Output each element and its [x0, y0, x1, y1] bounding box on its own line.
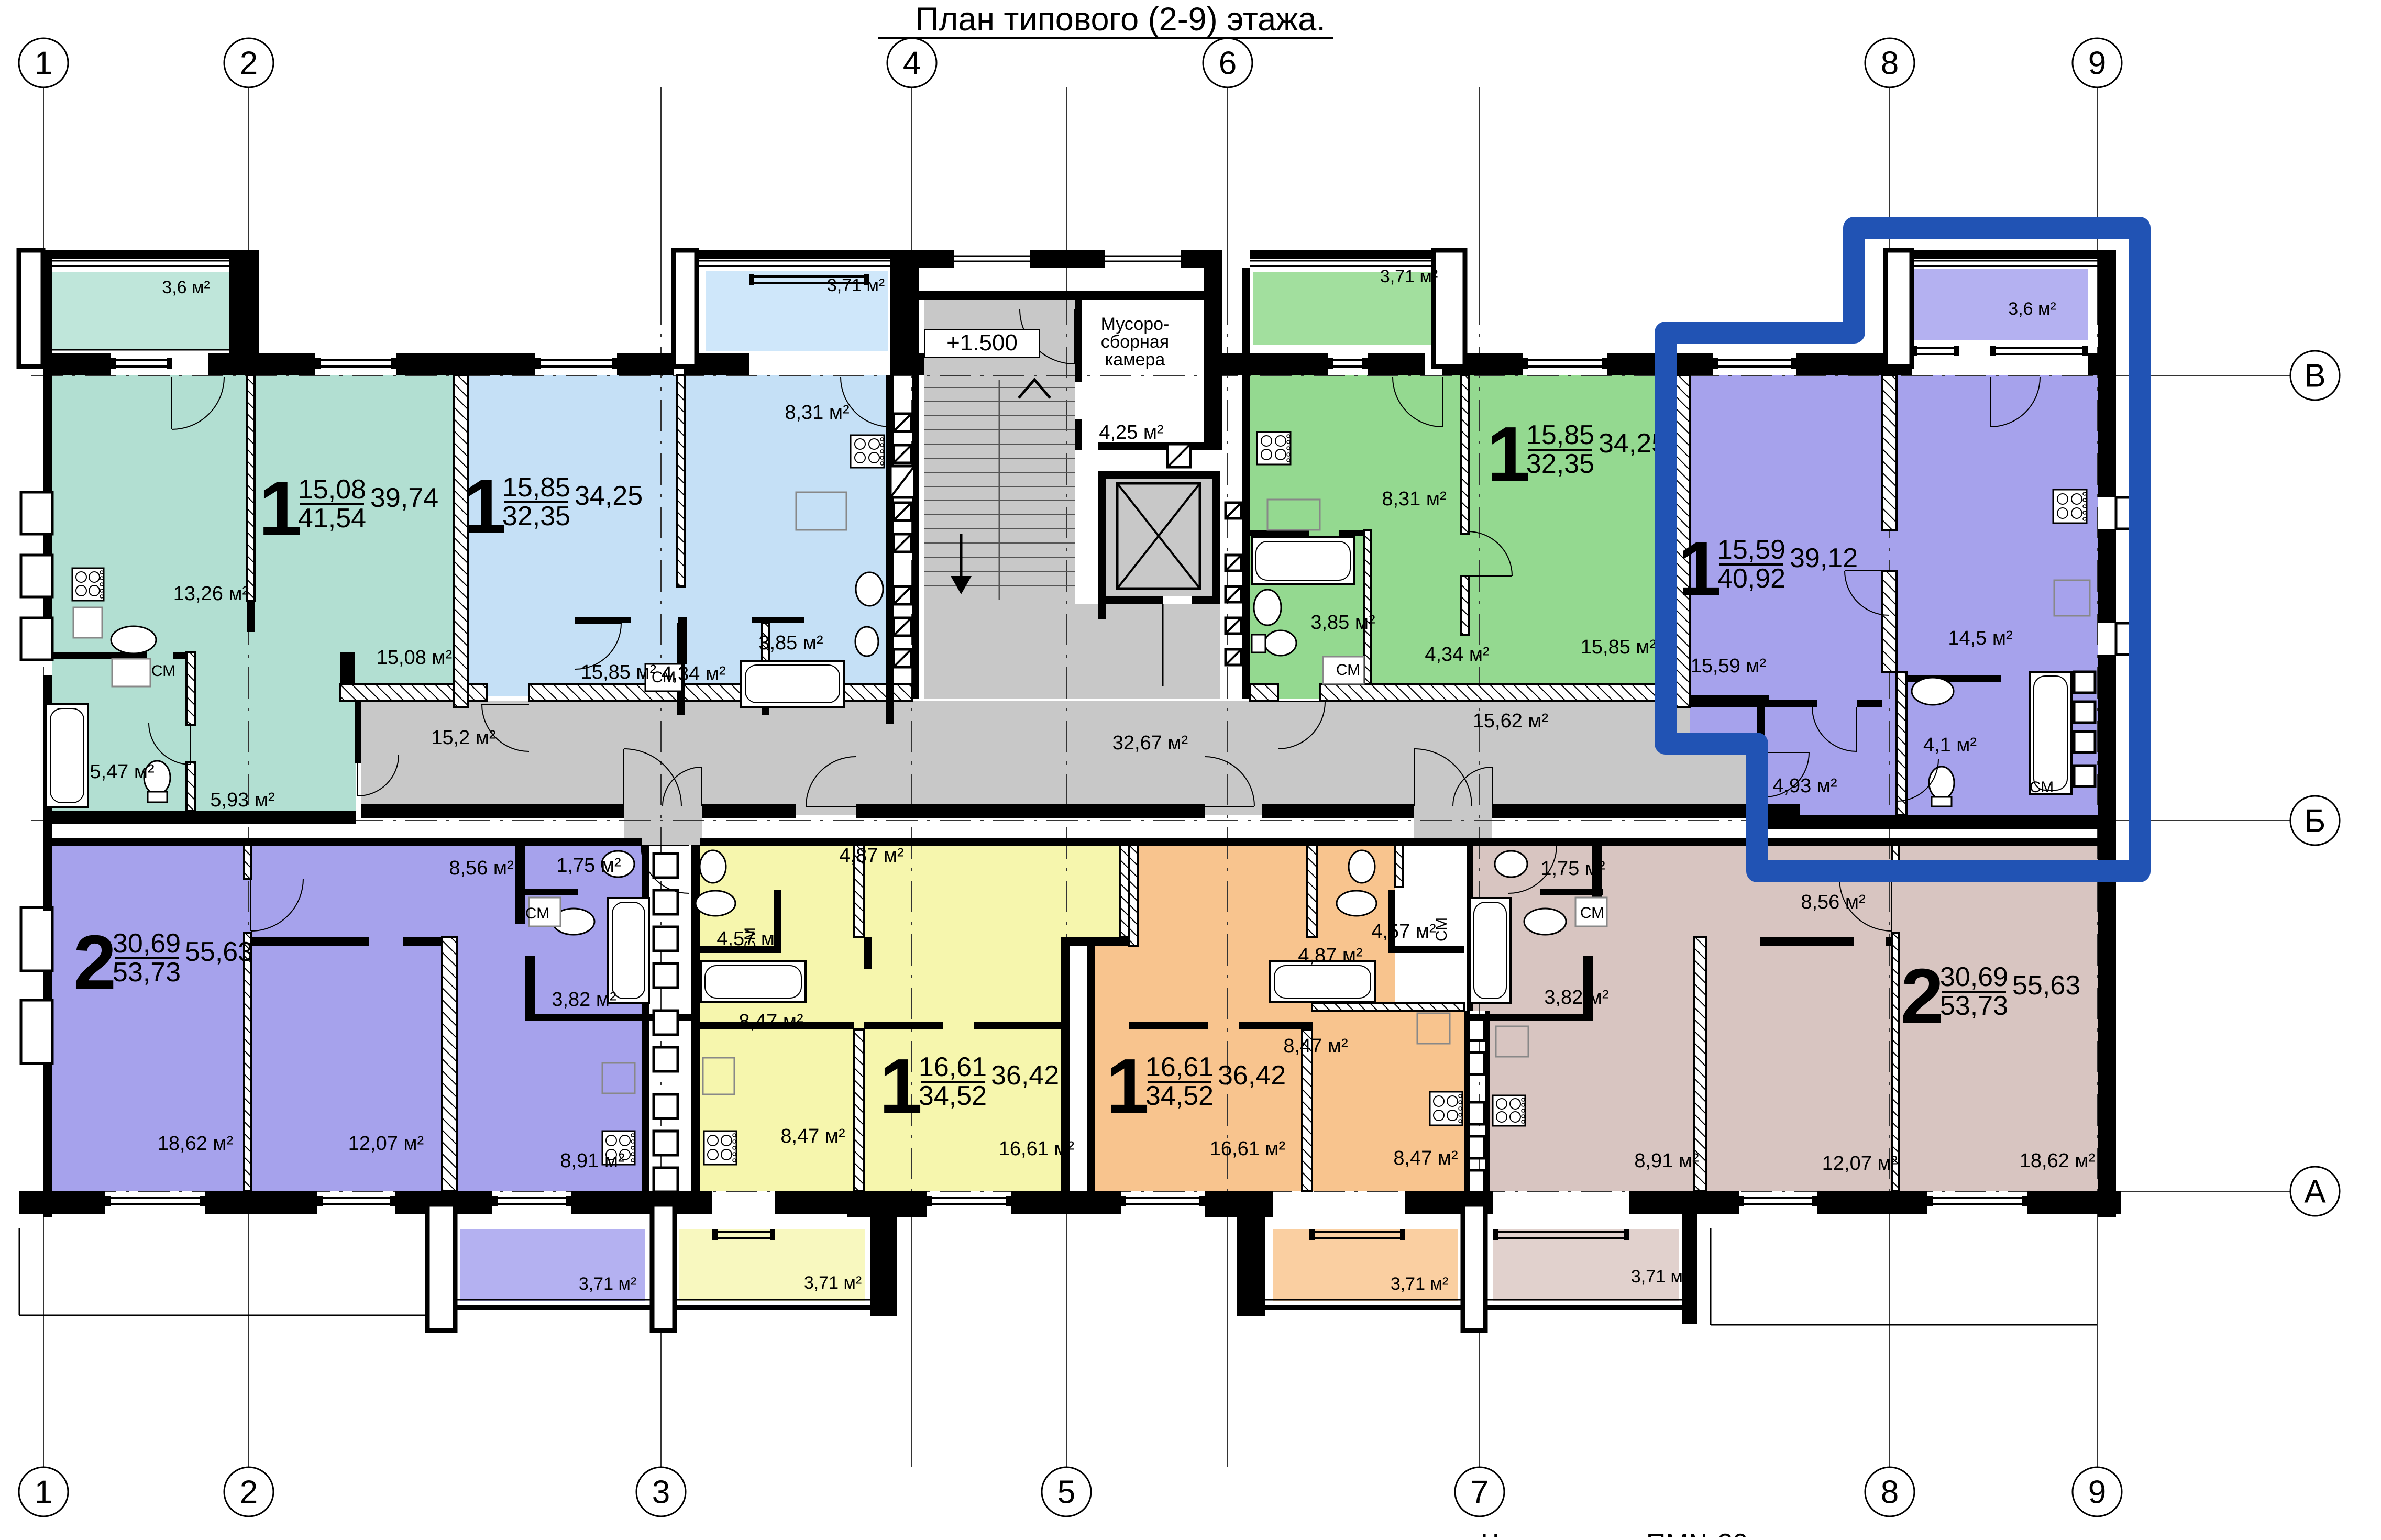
svg-text:15,62 м²: 15,62 м²: [1473, 710, 1548, 732]
svg-text:1: 1: [463, 463, 506, 550]
svg-text:1: 1: [1487, 411, 1530, 497]
svg-text:15,08: 15,08: [298, 474, 366, 505]
svg-text:1: 1: [1106, 1043, 1149, 1129]
svg-text:6: 6: [1219, 46, 1237, 82]
svg-text:18,62 м²: 18,62 м²: [158, 1133, 233, 1155]
svg-text:36,42: 36,42: [1218, 1060, 1286, 1091]
svg-text:16,61 м²: 16,61 м²: [1210, 1138, 1285, 1160]
svg-text:16,61 м²: 16,61 м²: [999, 1138, 1074, 1160]
svg-text:7: 7: [1471, 1475, 1489, 1511]
svg-text:15,85 м²: 15,85 м²: [581, 661, 656, 683]
svg-text:1: 1: [35, 1475, 52, 1511]
svg-text:+1.500: +1.500: [946, 330, 1018, 356]
svg-text:15,85: 15,85: [1526, 420, 1594, 450]
svg-text:4,93 м²: 4,93 м²: [1772, 775, 1837, 797]
svg-text:32,35: 32,35: [1526, 449, 1594, 479]
svg-text:5,93 м²: 5,93 м²: [210, 789, 274, 811]
svg-text:СМ: СМ: [525, 905, 549, 922]
svg-text:4,25 м²: 4,25 м²: [1099, 422, 1163, 444]
svg-text:9: 9: [2088, 1475, 2106, 1511]
svg-text:39,12: 39,12: [1790, 543, 1858, 573]
svg-text:34,25: 34,25: [575, 481, 643, 511]
svg-text:3,82 м²: 3,82 м²: [1544, 987, 1608, 1009]
svg-text:1: 1: [1678, 526, 1721, 612]
svg-text:3,6 м²: 3,6 м²: [162, 278, 210, 297]
svg-text:3,71 м²: 3,71 м²: [804, 1273, 862, 1293]
svg-text:СМ: СМ: [652, 669, 676, 686]
svg-text:2: 2: [240, 1475, 258, 1511]
svg-text:СМ: СМ: [1433, 917, 1450, 941]
svg-text:18,62 м²: 18,62 м²: [2020, 1150, 2095, 1172]
svg-text:ПМ№20: ПМ№20: [1646, 1528, 1748, 1537]
svg-text:камера: камера: [1105, 350, 1165, 370]
svg-text:8,56 м²: 8,56 м²: [449, 857, 513, 879]
svg-text:8,47 м²: 8,47 м²: [780, 1125, 845, 1147]
svg-text:15,2 м²: 15,2 м²: [431, 727, 495, 749]
svg-text:8,31 м²: 8,31 м²: [1382, 488, 1446, 510]
svg-text:8: 8: [1881, 1475, 1899, 1511]
svg-text:3,71 м²: 3,71 м²: [827, 275, 885, 295]
svg-text:34,52: 34,52: [1145, 1081, 1214, 1111]
svg-text:39,74: 39,74: [370, 483, 438, 513]
svg-text:Ч: Ч: [1481, 1528, 1500, 1537]
svg-text:3,85 м²: 3,85 м²: [758, 632, 823, 654]
svg-text:53,73: 53,73: [113, 957, 181, 988]
svg-text:2: 2: [240, 46, 258, 82]
svg-text:8,47 м²: 8,47 м²: [1283, 1035, 1348, 1057]
svg-text:1: 1: [35, 46, 52, 82]
svg-text:40,92: 40,92: [1717, 563, 1785, 594]
svg-text:8,91 м²: 8,91 м²: [560, 1150, 624, 1172]
svg-text:сборная: сборная: [1101, 332, 1169, 352]
svg-text:1,75 м²: 1,75 м²: [556, 855, 621, 877]
svg-text:32,67 м²: 32,67 м²: [1112, 732, 1188, 754]
svg-text:55,63: 55,63: [185, 937, 253, 967]
svg-text:4,87 м²: 4,87 м²: [839, 845, 903, 867]
svg-text:8,91 м²: 8,91 м²: [1634, 1150, 1699, 1172]
svg-text:СМ: СМ: [151, 662, 175, 680]
svg-text:1: 1: [879, 1043, 922, 1129]
svg-text:14,5 м²: 14,5 м²: [1948, 627, 2012, 649]
svg-text:4,34 м²: 4,34 м²: [1425, 644, 1489, 666]
svg-text:3,6 м²: 3,6 м²: [2008, 299, 2056, 319]
svg-text:12,07 м²: 12,07 м²: [1822, 1153, 1898, 1175]
svg-text:8,47 м²: 8,47 м²: [1393, 1147, 1458, 1169]
svg-text:3,82 м²: 3,82 м²: [552, 989, 616, 1011]
svg-text:4,1 м²: 4,1 м²: [1923, 734, 1977, 756]
svg-text:55,63: 55,63: [2012, 970, 2080, 1001]
svg-text:А: А: [2304, 1174, 2326, 1210]
svg-text:32,35: 32,35: [502, 501, 570, 531]
svg-text:1,75 м²: 1,75 м²: [1540, 858, 1605, 880]
svg-text:3,71 м²: 3,71 м²: [1380, 267, 1438, 286]
svg-text:36,42: 36,42: [991, 1060, 1059, 1091]
svg-text:2: 2: [73, 919, 116, 1006]
svg-text:СМ: СМ: [742, 927, 759, 951]
svg-text:53,73: 53,73: [1940, 991, 2008, 1021]
svg-text:8: 8: [1881, 46, 1899, 82]
svg-text:9: 9: [2088, 46, 2106, 82]
svg-text:34,52: 34,52: [919, 1081, 987, 1111]
svg-text:8,47 м²: 8,47 м²: [738, 1011, 803, 1033]
svg-text:16,61: 16,61: [1145, 1052, 1214, 1082]
svg-text:3,71 м²: 3,71 м²: [579, 1274, 636, 1294]
svg-text:41,54: 41,54: [298, 503, 366, 534]
svg-text:15,59: 15,59: [1717, 535, 1785, 565]
svg-text:4,87 м²: 4,87 м²: [1298, 945, 1362, 967]
svg-text:15,59 м²: 15,59 м²: [1691, 655, 1766, 677]
svg-text:План типового (2-9) этажа.: План типового (2-9) этажа.: [915, 1, 1326, 38]
svg-text:3,85 м²: 3,85 м²: [1310, 612, 1375, 634]
svg-text:2: 2: [1901, 953, 1944, 1039]
svg-text:3: 3: [652, 1475, 670, 1511]
svg-text:В: В: [2304, 358, 2325, 394]
svg-text:СМ: СМ: [1580, 904, 1604, 922]
svg-text:1: 1: [259, 466, 302, 552]
svg-text:13,26 м²: 13,26 м²: [173, 583, 249, 605]
svg-text:15,85 м²: 15,85 м²: [1581, 636, 1656, 658]
svg-text:16,61: 16,61: [919, 1052, 987, 1082]
svg-text:8,56 м²: 8,56 м²: [1801, 891, 1865, 913]
svg-text:СМ: СМ: [1336, 661, 1360, 679]
svg-text:30,69: 30,69: [113, 928, 181, 959]
svg-text:8,31 м²: 8,31 м²: [785, 402, 849, 424]
svg-text:12,07 м²: 12,07 м²: [348, 1133, 424, 1155]
svg-text:30,69: 30,69: [1940, 962, 2008, 992]
svg-text:СМ: СМ: [2030, 779, 2054, 796]
svg-text:Мусоро-: Мусоро-: [1101, 314, 1170, 334]
svg-text:15,85: 15,85: [502, 472, 570, 503]
svg-text:4: 4: [903, 46, 921, 82]
svg-text:15,08 м²: 15,08 м²: [377, 647, 452, 669]
svg-text:Б: Б: [2305, 803, 2326, 839]
svg-text:5,47 м²: 5,47 м²: [90, 761, 154, 783]
svg-text:5: 5: [1057, 1475, 1075, 1511]
svg-text:3,71 м²: 3,71 м²: [1631, 1267, 1689, 1287]
svg-text:3,71 м²: 3,71 м²: [1391, 1274, 1448, 1294]
svg-text:4,57 м²: 4,57 м²: [1371, 921, 1436, 943]
